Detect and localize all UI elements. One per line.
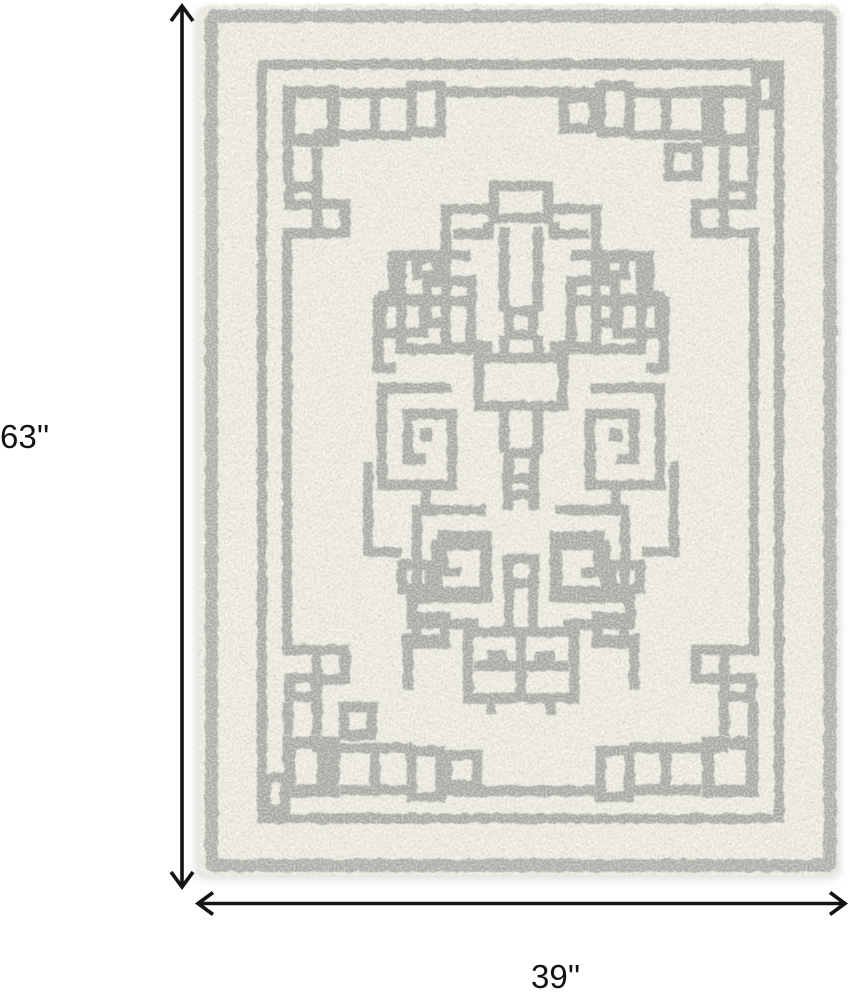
svg-text:39'': 39'' xyxy=(531,958,580,992)
svg-text:63'': 63'' xyxy=(0,418,49,455)
